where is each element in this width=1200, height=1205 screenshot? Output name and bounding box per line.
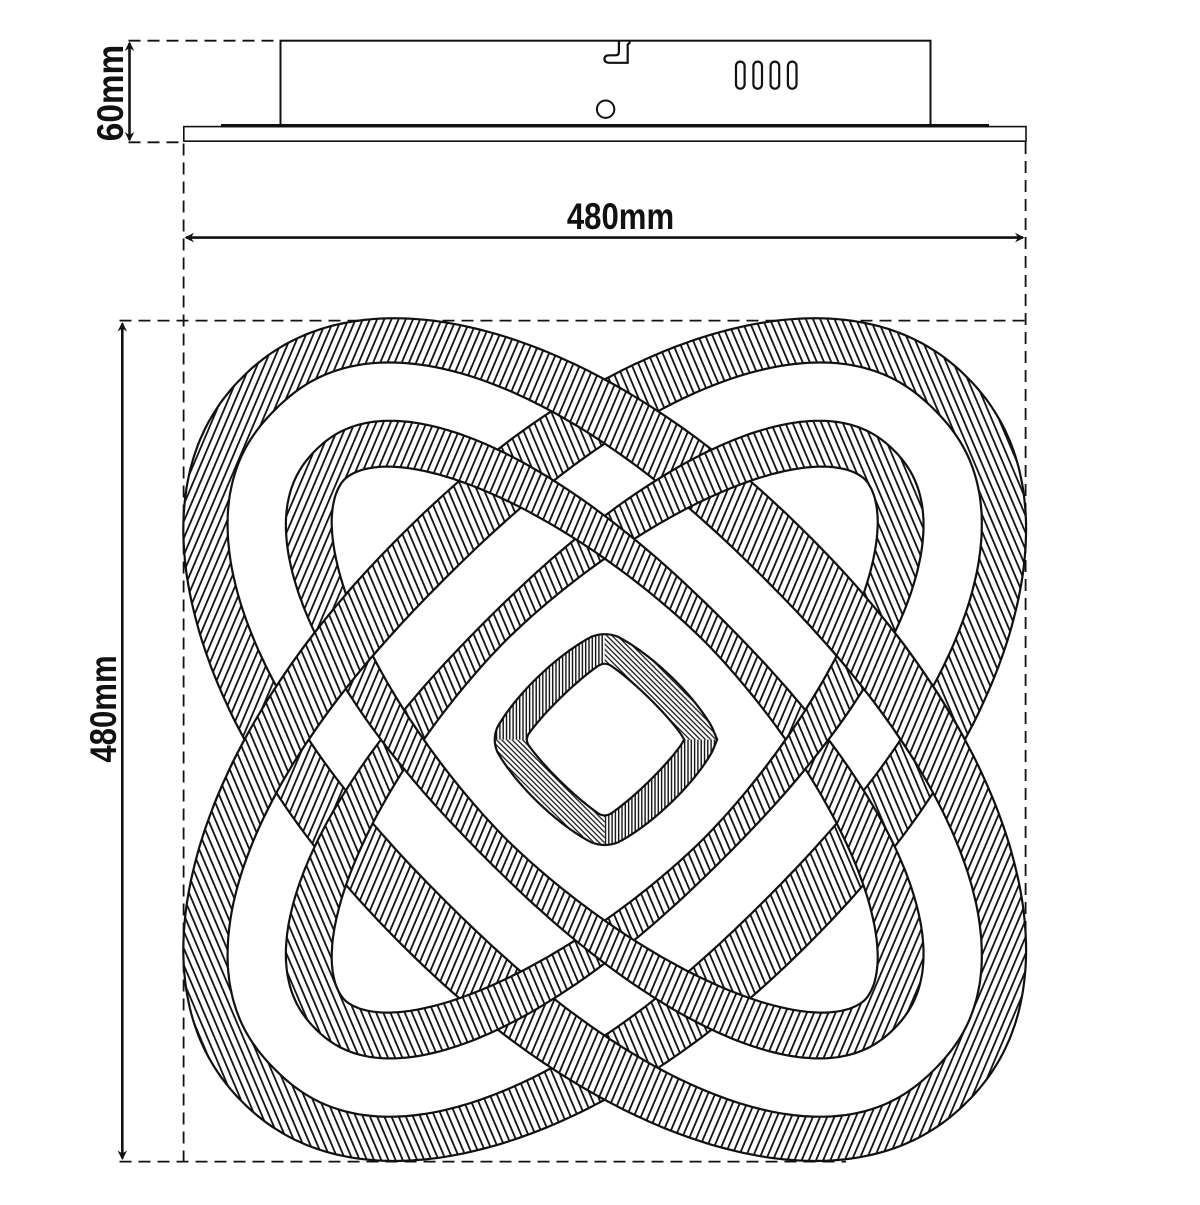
svg-text:480mm: 480mm xyxy=(83,655,124,762)
svg-text:480mm: 480mm xyxy=(567,196,674,237)
svg-text:60mm: 60mm xyxy=(89,45,131,141)
